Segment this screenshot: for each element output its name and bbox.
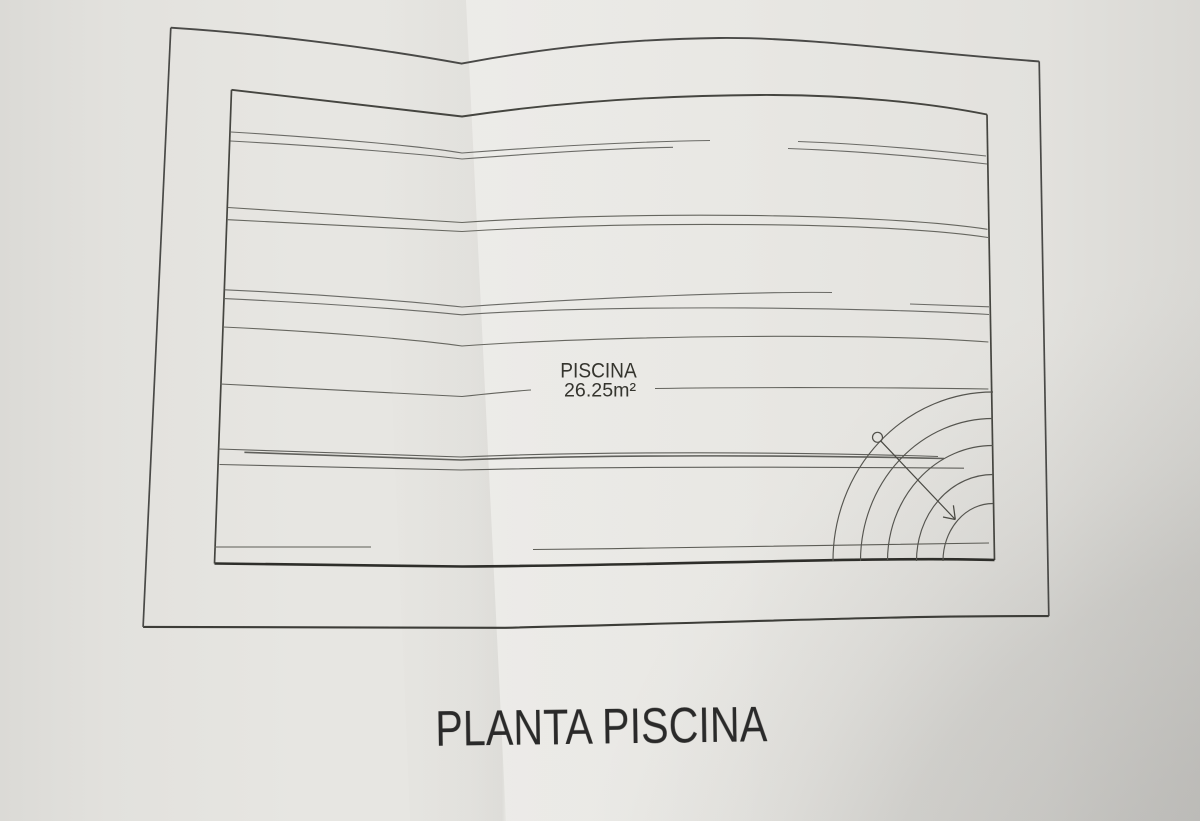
svg-text:26.25m²: 26.25m²: [564, 381, 636, 402]
svg-text:PISCINA: PISCINA: [560, 359, 637, 382]
svg-text:PLANTA PISCINA: PLANTA PISCINA: [435, 696, 768, 757]
